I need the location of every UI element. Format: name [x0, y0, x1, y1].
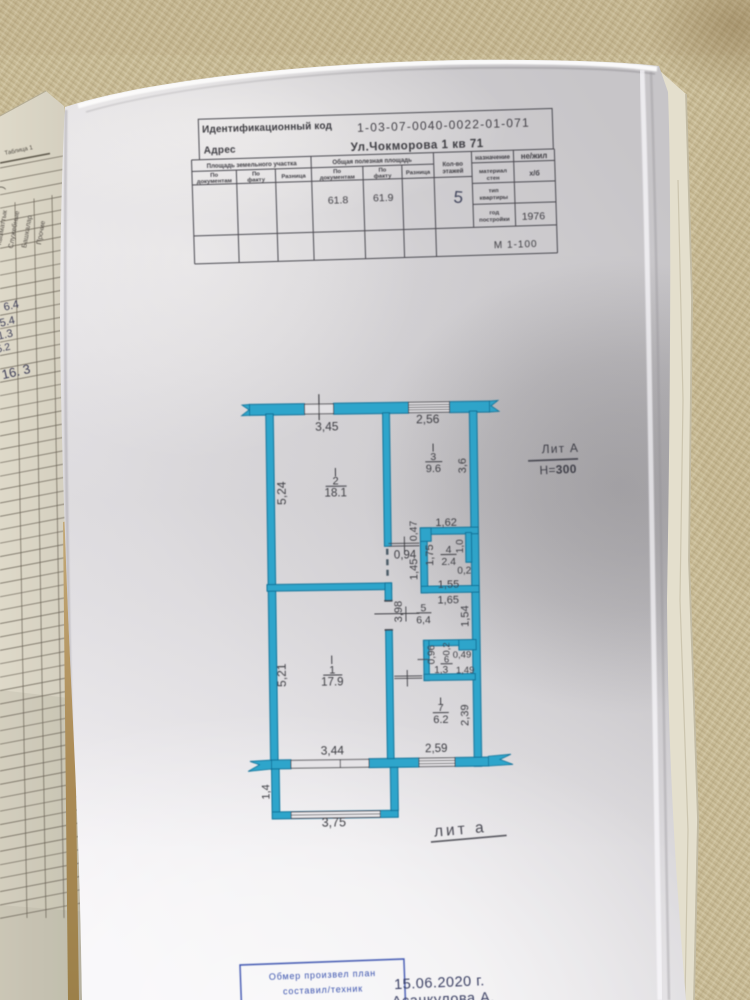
svg-text:6.2: 6.2 — [433, 714, 448, 726]
svg-text:Разница: Разница — [406, 170, 431, 177]
svg-text:5,21: 5,21 — [275, 663, 289, 687]
svg-text:Н=300: Н=300 — [539, 462, 577, 477]
svg-text:1,0: 1,0 — [455, 539, 466, 553]
svg-text:документам: документам — [320, 175, 355, 182]
svg-text:3,75: 3,75 — [322, 815, 347, 829]
svg-text:квартиры: квартиры — [480, 195, 509, 202]
svg-text:0,96: 0,96 — [426, 644, 437, 664]
svg-text:факту: факту — [374, 172, 393, 180]
svg-text:не/жил: не/жил — [521, 151, 548, 161]
svg-text:1,62: 1,62 — [435, 517, 457, 529]
svg-text:0,49: 0,49 — [453, 650, 472, 661]
svg-text:1,45: 1,45 — [408, 559, 420, 581]
svg-text:2,39: 2,39 — [459, 704, 471, 726]
svg-text:3,44: 3,44 — [321, 743, 345, 757]
svg-text:1,54: 1,54 — [459, 605, 471, 627]
svg-text:61.9: 61.9 — [373, 192, 394, 205]
svg-text:3,98: 3,98 — [393, 601, 405, 623]
svg-text:2: 2 — [332, 475, 338, 487]
svg-text:постройки: постройки — [479, 216, 510, 224]
svg-text:1,3: 1,3 — [434, 665, 448, 676]
svg-text:год: год — [489, 210, 499, 216]
svg-text:назначение: назначение — [475, 154, 511, 162]
svg-text:61.8: 61.8 — [328, 194, 349, 207]
svg-text:2,59: 2,59 — [425, 743, 448, 755]
svg-text:9.6: 9.6 — [426, 463, 441, 475]
svg-text:тип: тип — [488, 188, 499, 194]
svg-text:1,75: 1,75 — [424, 544, 436, 566]
svg-text:18.1: 18.1 — [324, 487, 347, 499]
svg-text:3,45: 3,45 — [315, 419, 339, 433]
svg-text:5,24: 5,24 — [275, 481, 289, 505]
svg-text:3,6: 3,6 — [457, 458, 469, 473]
svg-text:этажей: этажей — [442, 168, 463, 176]
svg-text:1,49: 1,49 — [456, 665, 475, 676]
svg-text:6,4: 6,4 — [416, 614, 431, 626]
svg-text:0,47: 0,47 — [408, 520, 420, 541]
svg-text:1,65: 1,65 — [437, 594, 459, 606]
svg-text:2.4: 2.4 — [441, 556, 456, 568]
svg-text:факту: факту — [247, 176, 266, 184]
svg-text:5: 5 — [453, 187, 464, 207]
svg-text:стен: стен — [487, 176, 501, 182]
svg-text:документам: документам — [197, 178, 232, 185]
svg-text:х/б: х/б — [529, 168, 540, 177]
svg-text:Лит А: Лит А — [541, 441, 579, 456]
svg-text:1976: 1976 — [522, 210, 546, 223]
svg-text:2,56: 2,56 — [416, 412, 440, 426]
svg-text:М 1-100: М 1-100 — [494, 239, 538, 251]
svg-text:0,2: 0,2 — [457, 566, 471, 577]
svg-text:17.9: 17.9 — [321, 676, 344, 688]
svg-text:материал: материал — [479, 168, 507, 175]
svg-text:1,4: 1,4 — [260, 784, 272, 799]
svg-text:Адрес: Адрес — [204, 145, 237, 157]
svg-text:1,55: 1,55 — [438, 579, 460, 591]
svg-text:Разница: Разница — [281, 173, 306, 180]
